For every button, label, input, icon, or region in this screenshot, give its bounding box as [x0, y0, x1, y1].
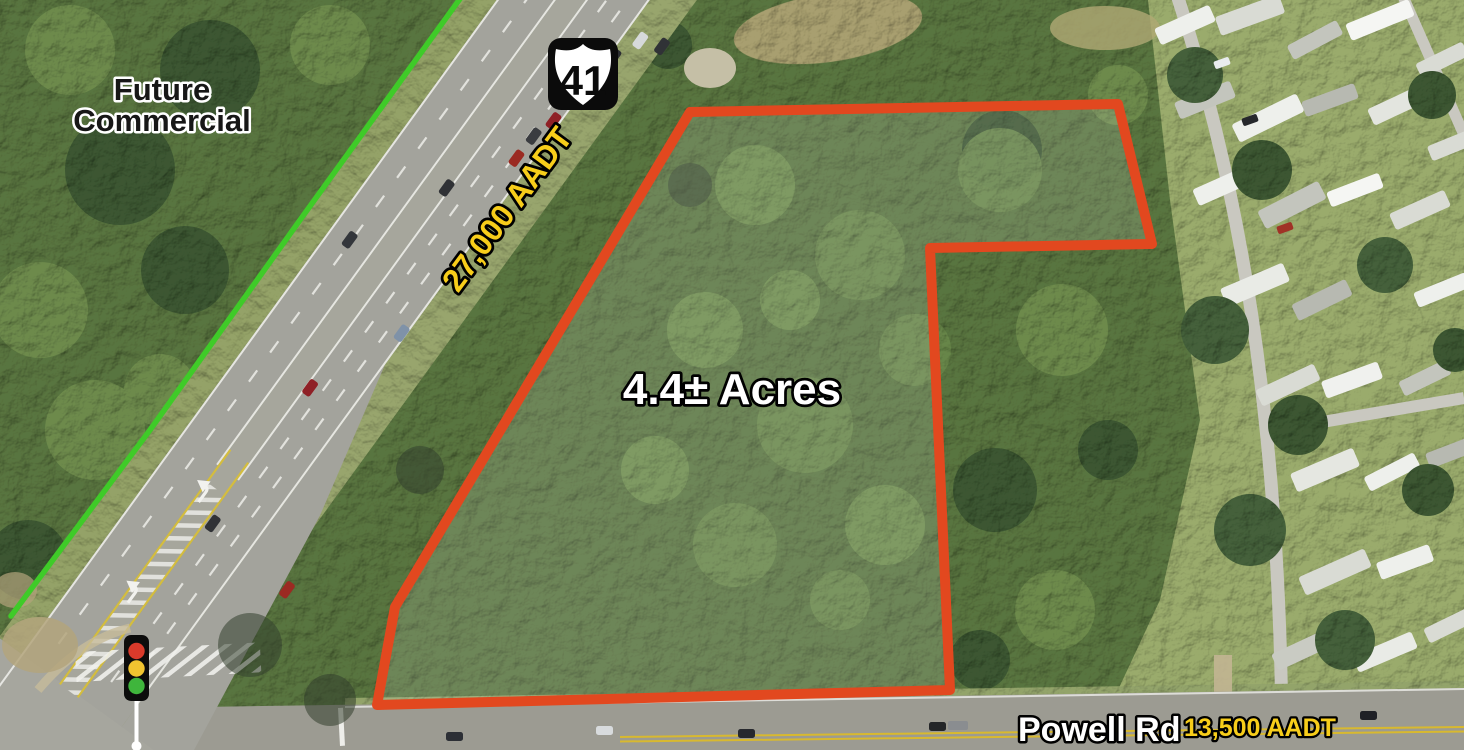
- signal-yellow: [128, 660, 144, 676]
- signal-green: [128, 678, 144, 694]
- aerial-photo: Future Commercial 27,000 AADT 4.4± Acres…: [0, 0, 1464, 750]
- future-commercial-line1: Future: [114, 72, 210, 107]
- acreage-label: 4.4± Acres: [623, 365, 841, 414]
- aerial-scene: Future Commercial 27,000 AADT 4.4± Acres…: [0, 0, 1464, 750]
- future-commercial-line2: Commercial: [73, 103, 250, 138]
- signal-red: [128, 643, 144, 659]
- route-number: 41: [560, 57, 607, 104]
- powell-rd-label: Powell Rd: [1018, 711, 1180, 749]
- us-route-41-shield-icon: 41: [548, 38, 618, 110]
- powell-rd-aadt-label: 13,500 AADT: [1184, 714, 1336, 742]
